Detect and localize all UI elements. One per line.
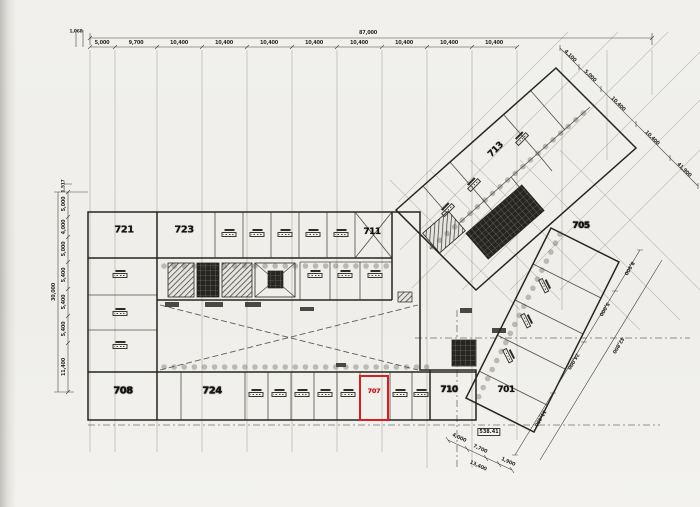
grid-lines [90,32,700,468]
room-label-724: 724 [202,386,221,397]
dim-top-seg: 10,400 [260,40,278,46]
room-tag [113,341,128,349]
dim-left-seg: 4,000 [61,220,67,235]
room-tag [341,389,356,397]
room-label-701: 701 [497,385,514,395]
dim-left-seg: 5,400 [61,268,67,283]
room-label-708: 708 [113,386,132,397]
room-tag [308,270,323,278]
floor-plan-canvas: 1,068 87,000 5,000 9,700 10,400 10,400 1… [0,0,700,507]
room-tag [278,229,293,237]
room-tag [368,270,383,278]
area-note: 538.41 [477,428,500,436]
room-tag [318,389,333,397]
dim-left-seg: 5,400 [61,295,67,310]
dim-left-seg: 5,400 [61,322,67,337]
dim-top-seg: 5,000 [95,40,110,46]
dim-left-seg: 11,400 [61,358,67,376]
room-tag [272,389,287,397]
highlighted-room[interactable] [359,375,389,421]
dim-top-seg: 10,400 [485,40,503,46]
dim-top-seg: 10,400 [395,40,413,46]
room-tag [113,308,128,316]
wing-a [396,68,636,290]
room-tag [393,389,408,397]
room-tag [222,229,237,237]
dim-left-seg: 5,000 [61,242,67,257]
room-label-721: 721 [114,225,133,236]
room-tag [338,270,353,278]
dim-left-total: 30,000 [51,283,57,301]
door-scallops [164,109,588,404]
room-tag [414,389,429,397]
dim-top-seg: 10,400 [170,40,188,46]
room-tag [250,229,265,237]
room-label-710: 710 [440,385,457,395]
room-label-711: 711 [363,227,380,237]
dim-left-lead-in: 1,517 [62,179,67,192]
centerlines [88,310,690,468]
dim-top-lead-in: 1,068 [69,30,82,35]
room-tag [306,229,321,237]
dim-top-total: 87,000 [359,30,377,36]
courtyard-cross [160,305,418,370]
room-label-723: 723 [174,225,193,236]
core-hatch [165,263,506,367]
dim-left-seg: 5,000 [61,197,67,212]
highlighted-room-label: 707 [368,387,381,395]
room-tag [334,229,349,237]
dim-top-seg: 10,400 [305,40,323,46]
room-tag [295,389,310,397]
dim-top-seg: 10,400 [215,40,233,46]
room-label-705: 705 [572,221,589,231]
dim-top-seg: 10,400 [440,40,458,46]
room-tag [113,270,128,278]
dim-top-seg: 10,400 [350,40,368,46]
dim-top-seg: 9,700 [129,40,144,46]
room-tag [249,389,264,397]
